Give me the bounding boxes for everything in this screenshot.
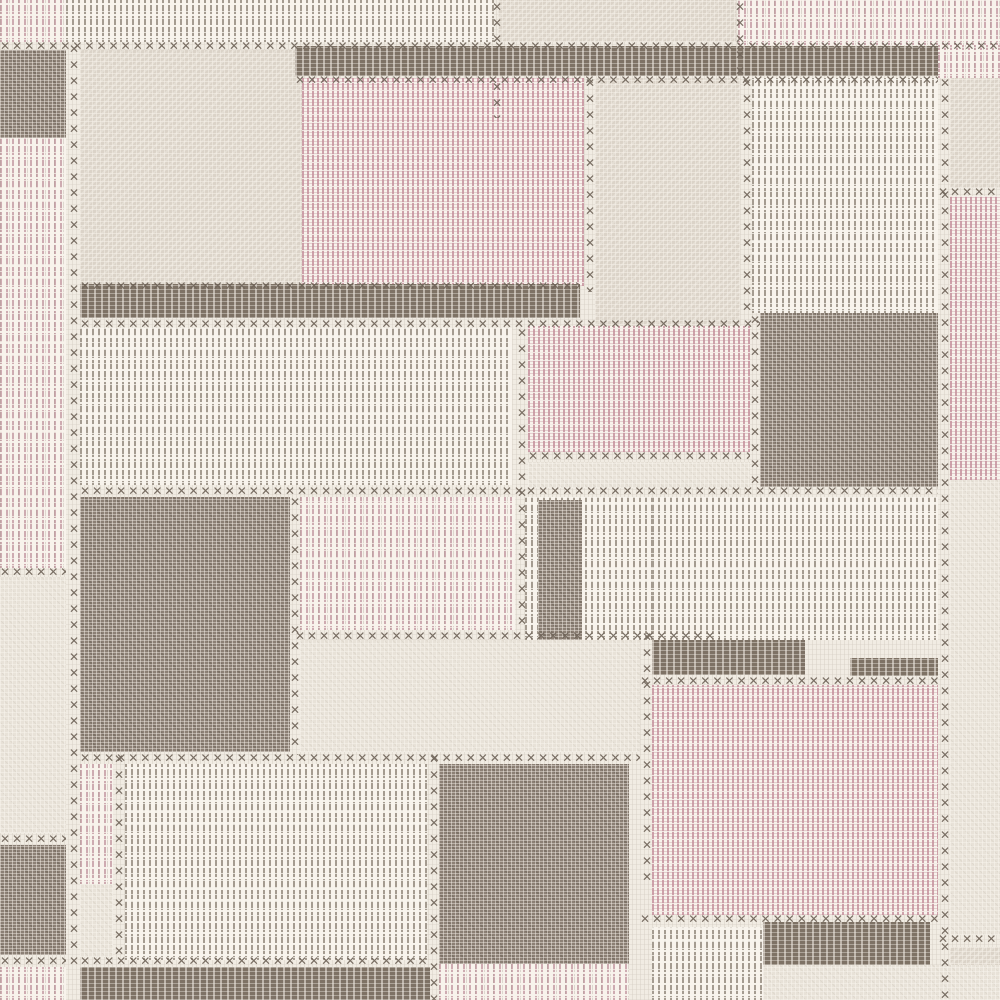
patch-left-pink-dash-bottom (0, 967, 66, 1000)
patch-beige-strip-lower (300, 640, 640, 752)
patch-pink-dash-middle (300, 497, 515, 630)
stitch-seam-column: ✕✕✕✕✕✕✕✕✕✕✕✕✕✕✕✕✕✕✕✕✕✕✕✕✕✕✕✕✕✕✕✕✕✕✕✕✕✕✕✕… (67, 42, 80, 965)
stitch-seam-row: ✕✕✕✕✕✕✕✕✕✕✕✕✕✕✕✕✕✕✕✕✕✕✕✕✕✕✕✕✕✕✕✕✕✕✕✕✕✕✕✕… (80, 752, 640, 765)
patch-beige-block-top (80, 50, 302, 286)
patch-dark-strip-center (538, 500, 582, 640)
patch-pink-right-edge (950, 196, 1000, 480)
patch-left-pink-dash (0, 138, 66, 568)
stitch-seam-row: ✕✕✕✕✕✕✕✕✕✕✕✕✕✕✕✕✕✕✕✕✕✕✕✕✕✕✕✕✕✕✕✕✕✕✕✕✕✕✕✕… (80, 318, 760, 331)
stitch-seam-row: ✕✕✕✕✕✕ (0, 833, 66, 846)
stitch-seam-column: ✕✕✕✕✕✕✕✕✕✕✕✕✕✕✕✕✕✕✕✕ (583, 76, 596, 292)
patch-left-beige-light (0, 577, 66, 833)
patch-gray-dash-middle (80, 328, 512, 485)
patch-left-dark-bottom (0, 845, 66, 955)
stitch-seam-column: ✕✕✕✕✕✕✕✕✕✕✕✕✕✕✕✕✕✕✕✕ (112, 752, 125, 962)
patch-top-strip-gray-dash (66, 0, 494, 42)
patch-pink-dash-bottom-left (80, 764, 113, 884)
patch-top-strip-pink-dash-left (0, 0, 66, 42)
patch-gray-dash-bottom (125, 764, 427, 960)
patch-top-strip-beige (498, 0, 736, 42)
stitch-seam-row: ✕✕✕✕✕✕✕✕✕✕✕✕✕✕✕✕✕✕✕✕✕ (528, 450, 750, 463)
stitch-seam-row: ✕✕✕✕✕✕✕✕✕✕✕✕✕✕✕✕✕✕✕✕✕✕✕✕✕✕✕✕ (640, 675, 938, 688)
stitch-seam-row: ✕✕✕✕✕✕✕✕✕✕✕✕✕✕✕✕✕✕✕✕✕✕✕✕✕✕✕✕✕✕✕✕ (80, 955, 430, 968)
patch-dark-square-left (80, 497, 290, 752)
wallpaper-swatch: ✕✕✕✕✕✕✕✕✕✕✕✕✕✕✕✕✕✕✕✕✕✕✕✕✕✕✕✕✕✕✕✕✕✕✕✕✕✕✕✕… (0, 0, 1000, 1000)
stitch-seam-column: ✕✕✕✕ (490, 0, 503, 44)
patch-beige-right-edge (950, 78, 1000, 188)
patch-beige-light-bottom-left (80, 884, 113, 957)
patch-pink-dash-bottom-center (439, 964, 629, 1000)
stitch-seam-row: ✕✕✕✕✕✕✕✕✕✕✕✕✕✕✕✕✕✕✕✕✕✕✕✕✕✕✕✕✕✕✕✕✕✕✕✕✕✕✕✕… (80, 280, 580, 293)
patch-dark-square-right (760, 313, 938, 487)
patch-dark-band-center-right (652, 640, 805, 675)
patch-pink-woven-middle (528, 326, 750, 452)
patch-dark-band-right-stub (850, 658, 938, 676)
stitch-seam-row: ✕✕✕✕✕✕✕✕✕✕✕✕✕✕✕✕✕✕✕✕✕✕✕✕✕✕✕✕ (640, 913, 938, 926)
patch-pink-woven-bottom-right (652, 685, 938, 915)
patch-beige-block-right (595, 78, 740, 333)
stitch-seam-row: ✕✕✕✕✕✕ (0, 955, 66, 968)
patch-pink-woven-top (302, 78, 584, 286)
patch-gray-dash-bottom-right (652, 927, 765, 1000)
stitch-seam-row: ✕✕✕✕✕✕✕✕✕✕✕✕✕✕✕✕✕✕✕✕✕✕✕✕✕✕✕✕✕✕✕✕✕✕✕✕✕✕✕ (295, 630, 720, 643)
patch-beige-light-right-edge (950, 480, 1000, 935)
stitch-seam-column: ✕✕✕✕✕✕✕✕✕✕✕✕✕✕✕✕✕✕✕✕✕✕✕✕ (288, 495, 301, 755)
stitch-seam-column: ✕✕✕✕✕✕✕✕✕✕✕✕✕✕✕✕✕✕✕✕✕✕✕ (427, 752, 440, 1000)
stitch-seam-column: ✕✕✕✕✕✕✕✕✕✕✕✕✕✕✕✕✕✕✕✕✕✕✕ (640, 630, 653, 882)
patch-beige-strip-bottom-right (763, 965, 1000, 1000)
stitch-seam-column: ✕✕✕✕✕✕✕✕ (733, 0, 746, 78)
patch-dark-band-bottom-left (80, 967, 430, 1000)
stitch-seam-row: ✕✕✕✕✕✕ (0, 566, 66, 579)
stitch-seam-column: ✕✕✕✕✕✕✕✕✕✕✕✕✕✕✕✕✕✕✕✕✕✕✕✕✕✕✕✕✕✕✕✕✕✕✕✕✕✕✕✕… (938, 76, 951, 1000)
stitch-seam-column: ✕✕✕✕✕✕✕✕✕✕✕✕✕✕✕✕ (748, 313, 761, 489)
stitch-seam-column: ✕✕✕✕✕✕✕✕✕✕✕✕✕✕✕✕✕✕✕✕✕✕✕✕✕✕✕✕ (515, 326, 528, 632)
patch-dark-band-bottom-right (763, 922, 930, 965)
stitch-seam-column: ✕✕✕✕ (490, 80, 503, 118)
patch-gray-dash-top-right (752, 78, 938, 313)
patch-top-strip-pink-right (738, 0, 1000, 45)
patch-dark-square-bottom (439, 764, 629, 964)
stitch-seam-row: ✕✕✕✕✕✕✕✕✕✕✕✕✕✕✕✕✕✕✕✕✕✕✕✕✕✕✕✕✕✕✕✕✕✕✕✕✕✕✕✕… (295, 74, 938, 87)
stitch-seam-row: ✕✕✕✕✕✕✕✕✕✕✕✕✕✕✕✕✕✕✕✕✕✕✕✕✕✕✕✕✕✕✕✕✕✕✕✕✕✕✕✕… (80, 485, 938, 498)
patch-left-dark-top (0, 50, 66, 138)
stitch-seam-column: ✕✕✕✕✕✕✕✕✕✕✕✕✕✕✕✕✕✕✕✕✕✕ (740, 76, 753, 315)
base-cloth: ✕✕✕✕✕✕✕✕✕✕✕✕✕✕✕✕✕✕✕✕✕✕✕✕✕✕✕✕✕✕✕✕✕✕✕✕✕✕✕✕… (0, 0, 1000, 1000)
patch-gray-dash-right (652, 497, 938, 640)
